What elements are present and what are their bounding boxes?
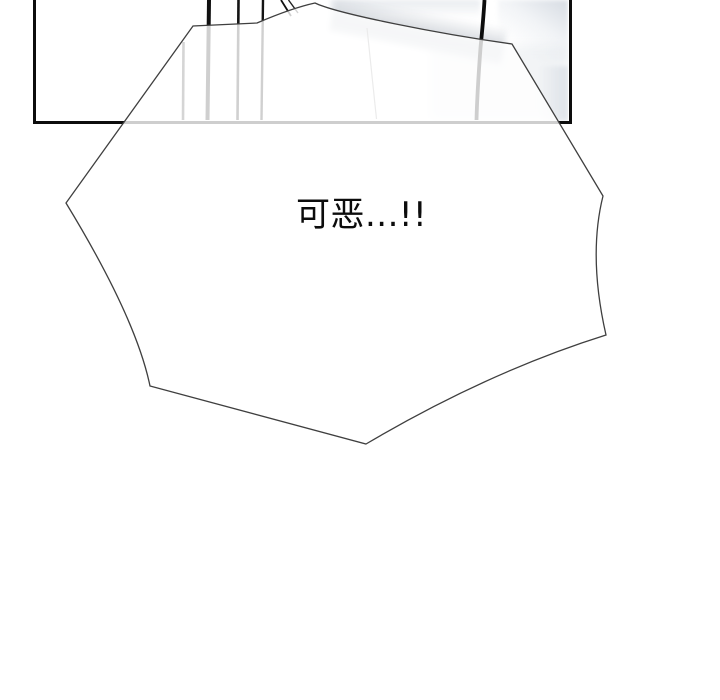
shading-gradient bbox=[430, 46, 568, 120]
shading-gradient bbox=[329, 0, 512, 64]
panel-artwork bbox=[36, 0, 568, 121]
comic-page: 可恶...!! bbox=[0, 0, 720, 700]
shading-gradient bbox=[538, 66, 568, 121]
shading-gradient bbox=[498, 0, 568, 62]
speech-bubble-text: 可恶...!! bbox=[296, 198, 427, 232]
shading-gradient bbox=[330, 0, 480, 18]
